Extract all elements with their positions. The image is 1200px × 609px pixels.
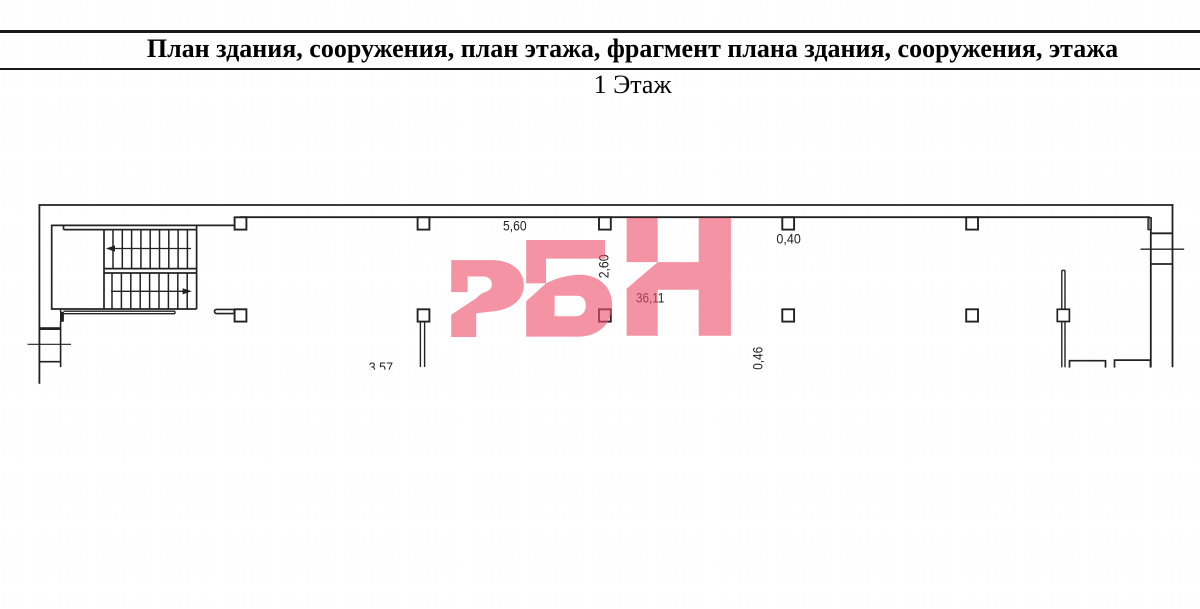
- svg-text:0,46: 0,46: [749, 347, 765, 370]
- svg-text:3,57: 3,57: [369, 359, 393, 375]
- svg-text:0,40: 0,40: [776, 231, 801, 247]
- svg-text:5,60: 5,60: [503, 217, 527, 233]
